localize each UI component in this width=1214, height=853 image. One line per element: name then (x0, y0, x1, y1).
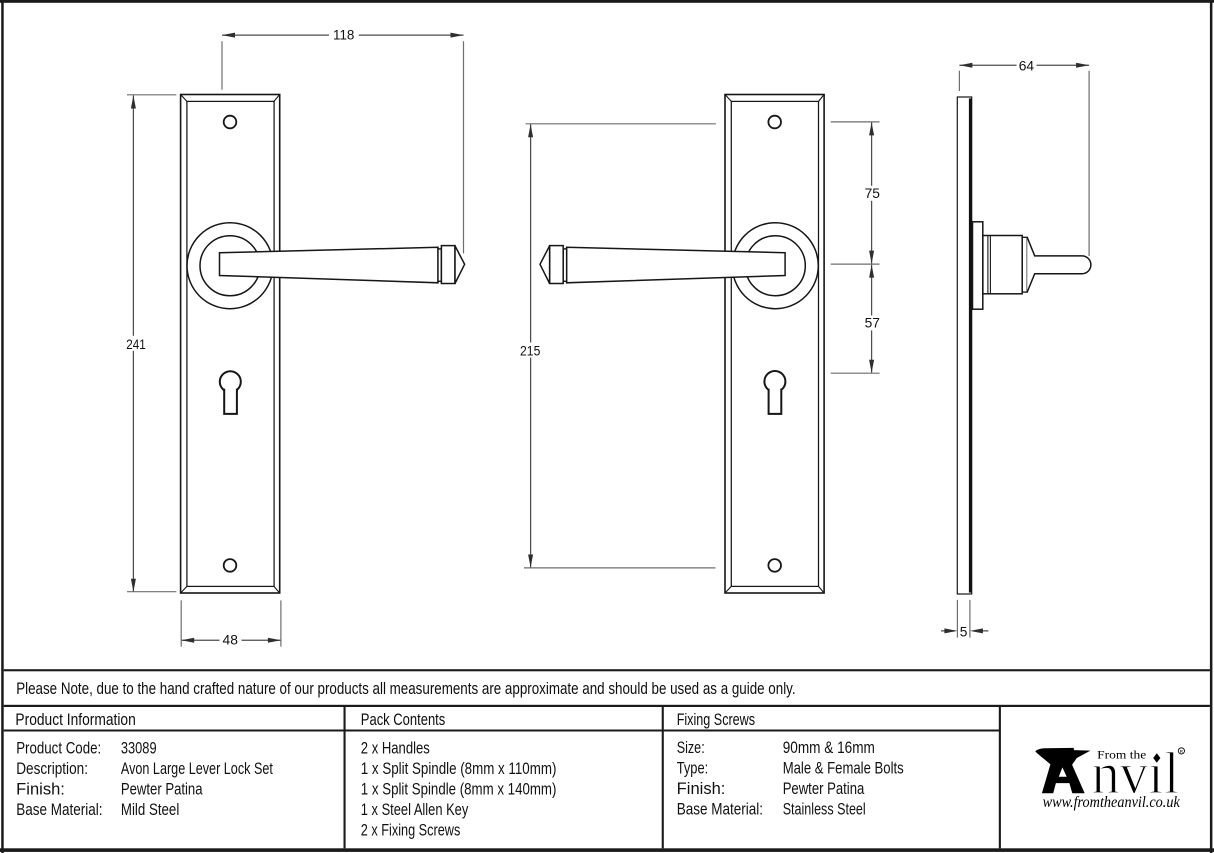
svg-text:Description:: Description: (16, 760, 88, 778)
svg-text:75: 75 (865, 186, 881, 201)
svg-text:Avon Large Lever Lock Set: Avon Large Lever Lock Set (121, 760, 273, 778)
svg-text:Pewter Patina: Pewter Patina (121, 780, 203, 798)
svg-text:215: 215 (520, 343, 541, 358)
svg-text:118: 118 (333, 28, 355, 43)
svg-text:57: 57 (865, 316, 880, 331)
svg-text:5: 5 (960, 625, 968, 640)
svg-text:Base Material:: Base Material: (677, 800, 763, 818)
svg-text:48: 48 (223, 632, 239, 647)
svg-text:2 x Fixing Screws: 2 x Fixing Screws (361, 821, 461, 839)
svg-text:1 x Split Spindle (8mm x 140mm: 1 x Split Spindle (8mm x 140mm) (361, 780, 557, 798)
svg-text:Fixing Screws: Fixing Screws (677, 711, 755, 729)
svg-text:64: 64 (1019, 58, 1035, 73)
svg-text:90mm & 16mm: 90mm & 16mm (783, 739, 875, 757)
svg-text:Size:: Size: (677, 739, 705, 757)
svg-text:Please Note, due to the hand c: Please Note, due to the hand crafted nat… (16, 680, 795, 698)
svg-text:Finish:: Finish: (677, 780, 726, 798)
svg-text:Type:: Type: (677, 759, 709, 777)
svg-text:Product Code:: Product Code: (16, 739, 101, 757)
svg-text:1 x Split Spindle (8mm x 110mm: 1 x Split Spindle (8mm x 110mm) (361, 760, 557, 778)
svg-text:Product Information: Product Information (15, 711, 135, 729)
svg-text:R: R (1180, 749, 1184, 755)
svg-text:Male & Female Bolts: Male & Female Bolts (783, 759, 904, 777)
svg-text:www.fromtheanvil.co.uk: www.fromtheanvil.co.uk (1043, 794, 1181, 811)
svg-text:241: 241 (126, 337, 146, 352)
svg-text:Finish:: Finish: (16, 780, 65, 798)
svg-text:Base Material:: Base Material: (16, 801, 102, 819)
svg-text:Mild Steel: Mild Steel (121, 801, 179, 819)
svg-text:33089: 33089 (121, 739, 157, 757)
svg-text:Stainless Steel: Stainless Steel (783, 800, 866, 818)
svg-text:Pewter Patina: Pewter Patina (783, 780, 865, 798)
svg-text:2 x Handles: 2 x Handles (361, 739, 430, 757)
svg-text:Pack Contents: Pack Contents (361, 711, 446, 729)
svg-text:1 x Steel Allen Key: 1 x Steel Allen Key (361, 801, 469, 819)
